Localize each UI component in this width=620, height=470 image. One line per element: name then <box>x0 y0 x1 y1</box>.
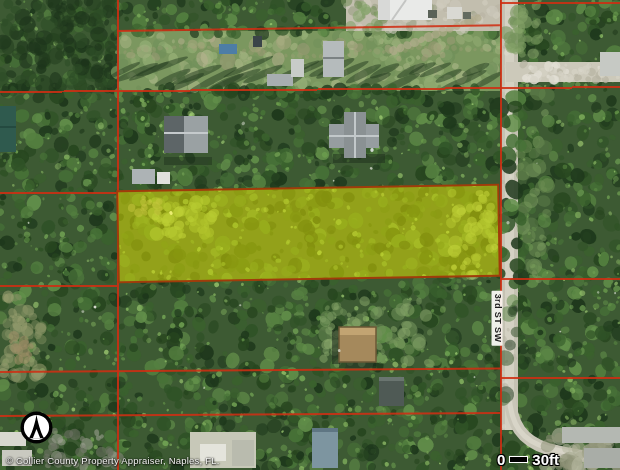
street-name-label: 3rd ST SW <box>492 291 503 346</box>
scale-bar-segment <box>509 456 528 463</box>
parcel-boundary-line <box>500 2 620 4</box>
parcel-boundary-line <box>500 377 620 379</box>
map-viewport[interactable]: 3rd ST SW 0 30ft © Collier County Proper… <box>0 0 620 470</box>
parcel-boundary-line <box>0 192 117 194</box>
parcel-boundary-line <box>500 278 620 280</box>
parcel-boundary-line <box>0 285 117 287</box>
subject-parcel-highlight[interactable] <box>116 184 501 284</box>
parcel-boundary-line <box>500 0 502 470</box>
attribution: © Collier County Property Appraiser, Nap… <box>6 455 220 466</box>
scale-end-label: 30ft <box>532 451 559 468</box>
scale-start-label: 0 <box>497 451 505 468</box>
scale-bar: 0 30ft <box>497 450 559 468</box>
north-arrow-icon <box>20 411 53 444</box>
